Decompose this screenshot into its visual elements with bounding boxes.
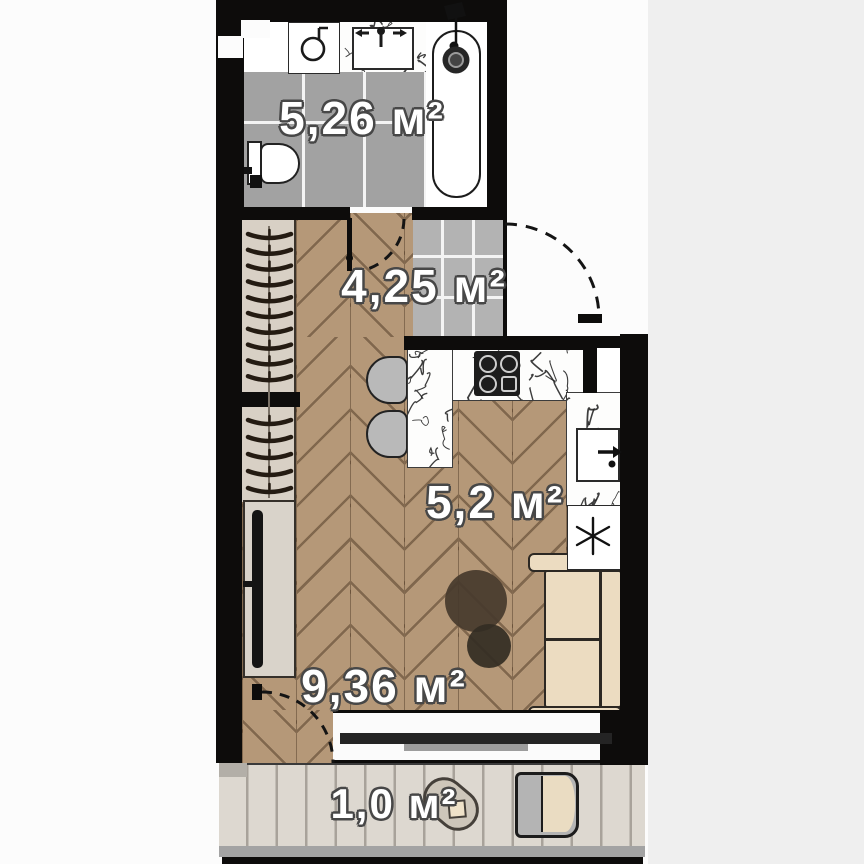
wall-niche	[597, 348, 620, 392]
wardrobe	[242, 220, 296, 502]
balcony-ledge	[219, 763, 247, 777]
burner-icon	[501, 376, 517, 392]
entrance-door-swing-arc	[505, 224, 599, 318]
stool	[366, 410, 408, 458]
wood-plank-column	[242, 710, 296, 763]
wall	[216, 220, 242, 763]
background-right-column	[648, 0, 864, 864]
sofa-body	[544, 570, 622, 708]
washing-machine	[288, 22, 340, 74]
toilet-bowl	[260, 143, 300, 184]
balcony-door-floor	[242, 710, 333, 763]
sofa-seat-seam	[546, 638, 599, 641]
refrigerator	[567, 505, 622, 570]
kitchen-area-label: 5,2 м²	[426, 475, 564, 529]
marble-texture	[408, 350, 452, 467]
tv-console	[243, 500, 296, 678]
wall	[216, 0, 244, 220]
hallway-area-label: 4,25 м²	[341, 259, 507, 313]
burner-icon	[479, 375, 497, 393]
wall	[487, 0, 507, 218]
stool	[366, 356, 408, 404]
coffee-table-small	[467, 624, 511, 668]
bathroom-area-label: 5,26 м²	[279, 91, 445, 145]
window-sill-bar	[404, 744, 528, 751]
kitchen-bar-table	[408, 350, 452, 467]
cooktop	[474, 351, 520, 396]
balcony-area-label: 1,0 м²	[330, 780, 457, 828]
living-room-area-label: 9,36 м²	[301, 659, 467, 713]
wall	[412, 207, 507, 220]
tv-screen	[252, 510, 263, 668]
wall-notch	[241, 20, 270, 38]
coffee-table-large	[445, 570, 507, 632]
tv-mount	[243, 581, 253, 587]
duct-shaft	[583, 336, 597, 393]
sofa-backrest-line	[599, 572, 602, 706]
window-frame-bar	[340, 733, 612, 744]
wardrobe-divider	[240, 392, 300, 407]
burner-icon	[500, 355, 518, 373]
wall-notch	[218, 36, 243, 58]
wall	[620, 334, 648, 764]
burner-icon	[479, 355, 497, 373]
balcony-parapet	[222, 857, 643, 864]
window-frame-bottom-line	[333, 760, 622, 763]
wall	[216, 0, 507, 22]
balcony-railing	[219, 846, 645, 857]
floor-plan: 5,26 м² 4,25 м² 5,2 м² 9,36 м² 1,0 м²	[0, 0, 864, 864]
wood-plank-column	[296, 710, 333, 763]
kitchen-sink	[576, 428, 620, 482]
wall	[216, 207, 350, 220]
balcony-chair-cushion	[541, 776, 575, 832]
bathroom-sink	[352, 27, 414, 70]
balcony-chair	[515, 772, 579, 838]
entrance-door-leaf	[578, 314, 602, 323]
wood-plank-column	[296, 337, 350, 710]
